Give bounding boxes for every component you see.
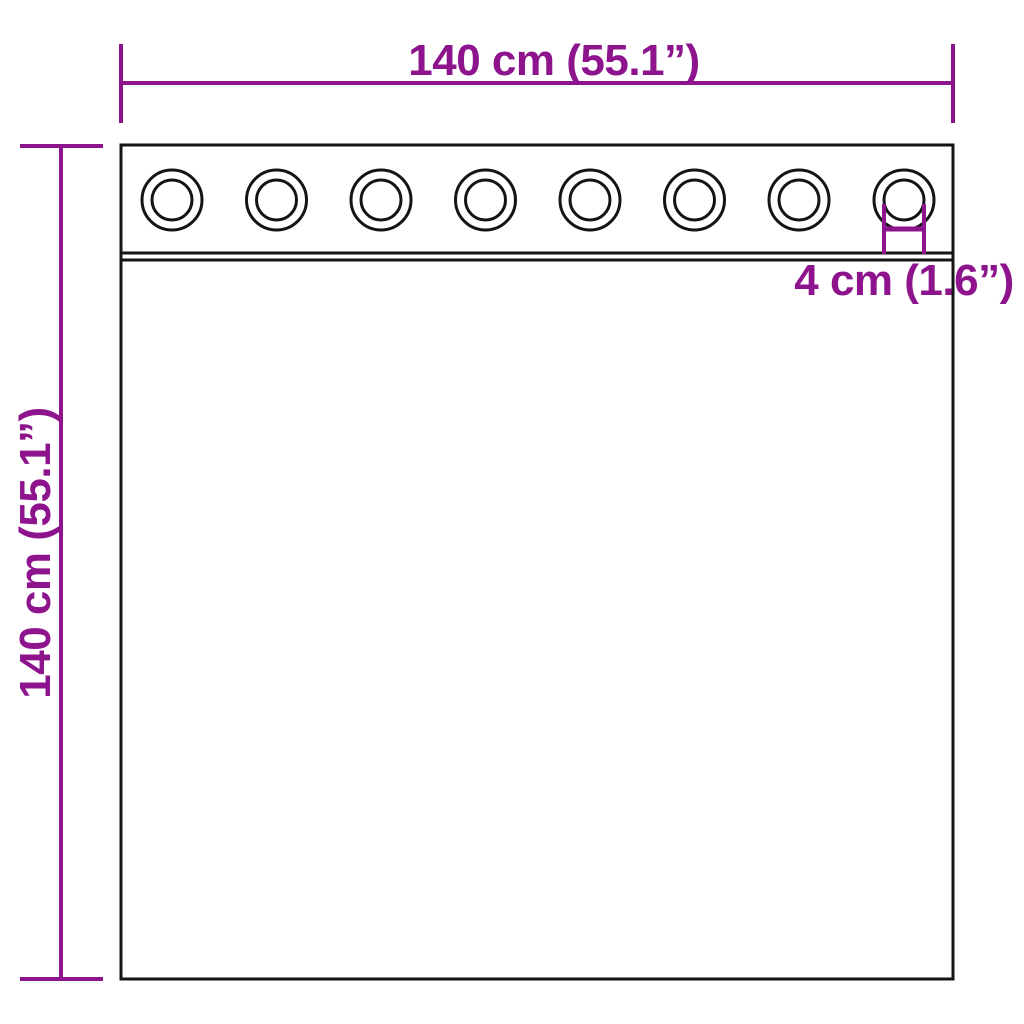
grommet-1	[142, 170, 202, 230]
grommet-2	[247, 170, 307, 230]
grommet-inner-ring	[466, 180, 506, 220]
grommet-dimension-label: 4 cm (1.6”)	[794, 256, 1013, 305]
grommet-inner-ring	[884, 180, 924, 220]
grommet-inner-ring	[257, 180, 297, 220]
width-dimension-label: 140 cm (55.1”)	[408, 36, 699, 85]
grommet-3	[351, 170, 411, 230]
grommet-inner-ring	[779, 180, 819, 220]
diagram-canvas: 140 cm (55.1”) 140 cm (55.1”) 4 cm (1.6”…	[0, 0, 1024, 1024]
grommet-inner-ring	[570, 180, 610, 220]
grommet-6	[665, 170, 725, 230]
grommet-7	[769, 170, 829, 230]
product-dimension-diagram: 140 cm (55.1”) 140 cm (55.1”) 4 cm (1.6”…	[0, 0, 1024, 1024]
height-dimension: 140 cm (55.1”)	[11, 146, 103, 979]
grommet-inner-ring	[675, 180, 715, 220]
grommet-4	[456, 170, 516, 230]
grommet-5	[560, 170, 620, 230]
grommet-inner-ring	[152, 180, 192, 220]
grommet-inner-ring	[361, 180, 401, 220]
width-dimension: 140 cm (55.1”)	[121, 36, 953, 123]
height-dimension-label: 140 cm (55.1”)	[11, 407, 60, 698]
